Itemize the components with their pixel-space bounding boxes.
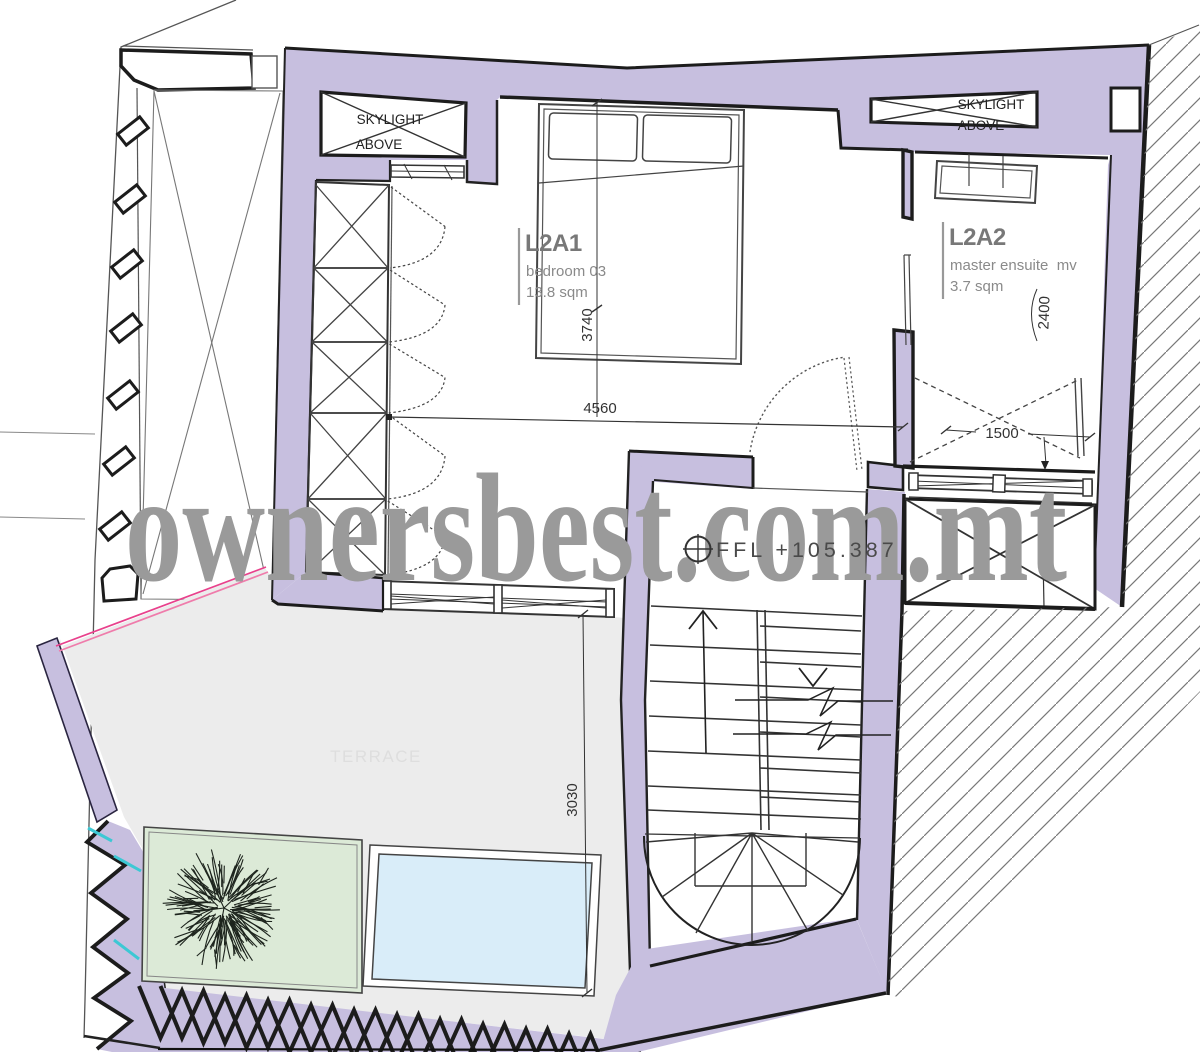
svg-text:SKYLIGHT: SKYLIGHT — [357, 112, 424, 127]
svg-text:master ensuite mv: master ensuite mv — [950, 257, 1077, 274]
svg-text:L2A2: L2A2 — [949, 224, 1006, 251]
svg-text:TERRACE: TERRACE — [330, 747, 422, 766]
svg-text:3740: 3740 — [579, 308, 596, 341]
svg-text:2400: 2400 — [1035, 296, 1053, 330]
svg-text:L2A1: L2A1 — [525, 230, 582, 257]
svg-text:1500: 1500 — [985, 425, 1018, 442]
svg-text:bedroom 03: bedroom 03 — [526, 263, 606, 280]
svg-text:ABOVE: ABOVE — [356, 137, 403, 152]
svg-text:SKYLIGHT: SKYLIGHT — [958, 97, 1025, 112]
svg-text:4560: 4560 — [583, 400, 616, 417]
svg-text:3.7 sqm: 3.7 sqm — [950, 278, 1003, 295]
svg-text:ownersbest.com.mt: ownersbest.com.mt — [125, 442, 1067, 614]
svg-text:13.8 sqm: 13.8 sqm — [526, 284, 588, 301]
svg-text:ABOVE: ABOVE — [958, 118, 1005, 133]
svg-text:3030: 3030 — [564, 783, 581, 816]
svg-text:FFL +105.387: FFL +105.387 — [716, 538, 898, 562]
